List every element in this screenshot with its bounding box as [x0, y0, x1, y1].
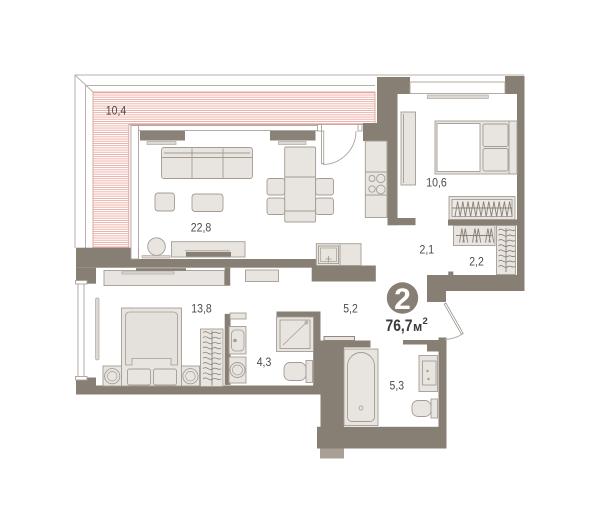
- svg-text:4,3: 4,3: [257, 357, 272, 369]
- svg-text:2: 2: [423, 316, 428, 327]
- svg-text:м: м: [413, 320, 422, 334]
- svg-text:5,3: 5,3: [390, 381, 405, 393]
- svg-text:22,8: 22,8: [191, 223, 212, 235]
- svg-text:5,2: 5,2: [343, 304, 358, 316]
- svg-text:10,6: 10,6: [426, 178, 447, 190]
- svg-text:2: 2: [394, 283, 411, 316]
- svg-text:13,8: 13,8: [191, 304, 212, 316]
- svg-text:2,2: 2,2: [469, 257, 484, 269]
- svg-text:2,1: 2,1: [420, 245, 435, 257]
- svg-text:76,7: 76,7: [386, 316, 413, 335]
- svg-text:10,4: 10,4: [106, 105, 127, 117]
